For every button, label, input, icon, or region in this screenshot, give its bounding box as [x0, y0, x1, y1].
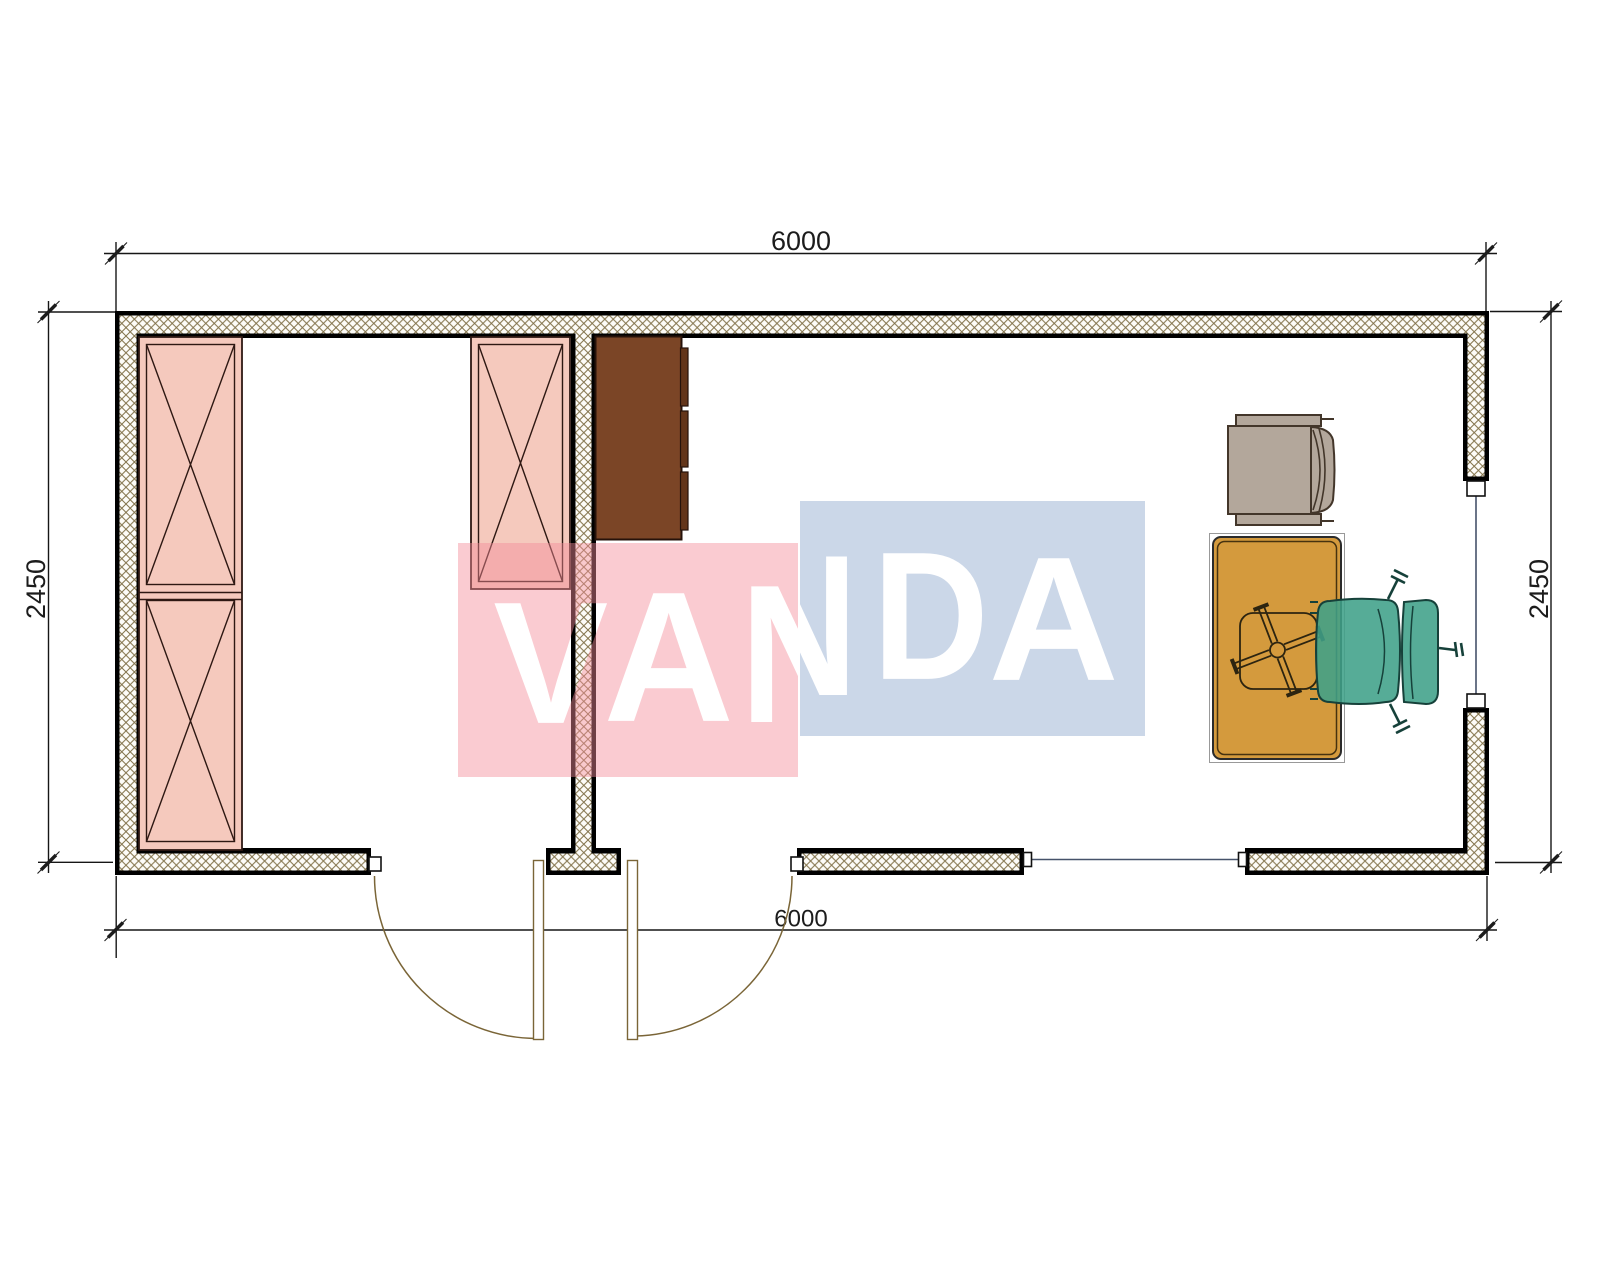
svg-text:6000: 6000 — [774, 906, 827, 933]
svg-text:2450: 2450 — [21, 559, 51, 619]
svg-text:2450: 2450 — [1524, 559, 1554, 619]
svg-text:6000: 6000 — [771, 226, 831, 256]
